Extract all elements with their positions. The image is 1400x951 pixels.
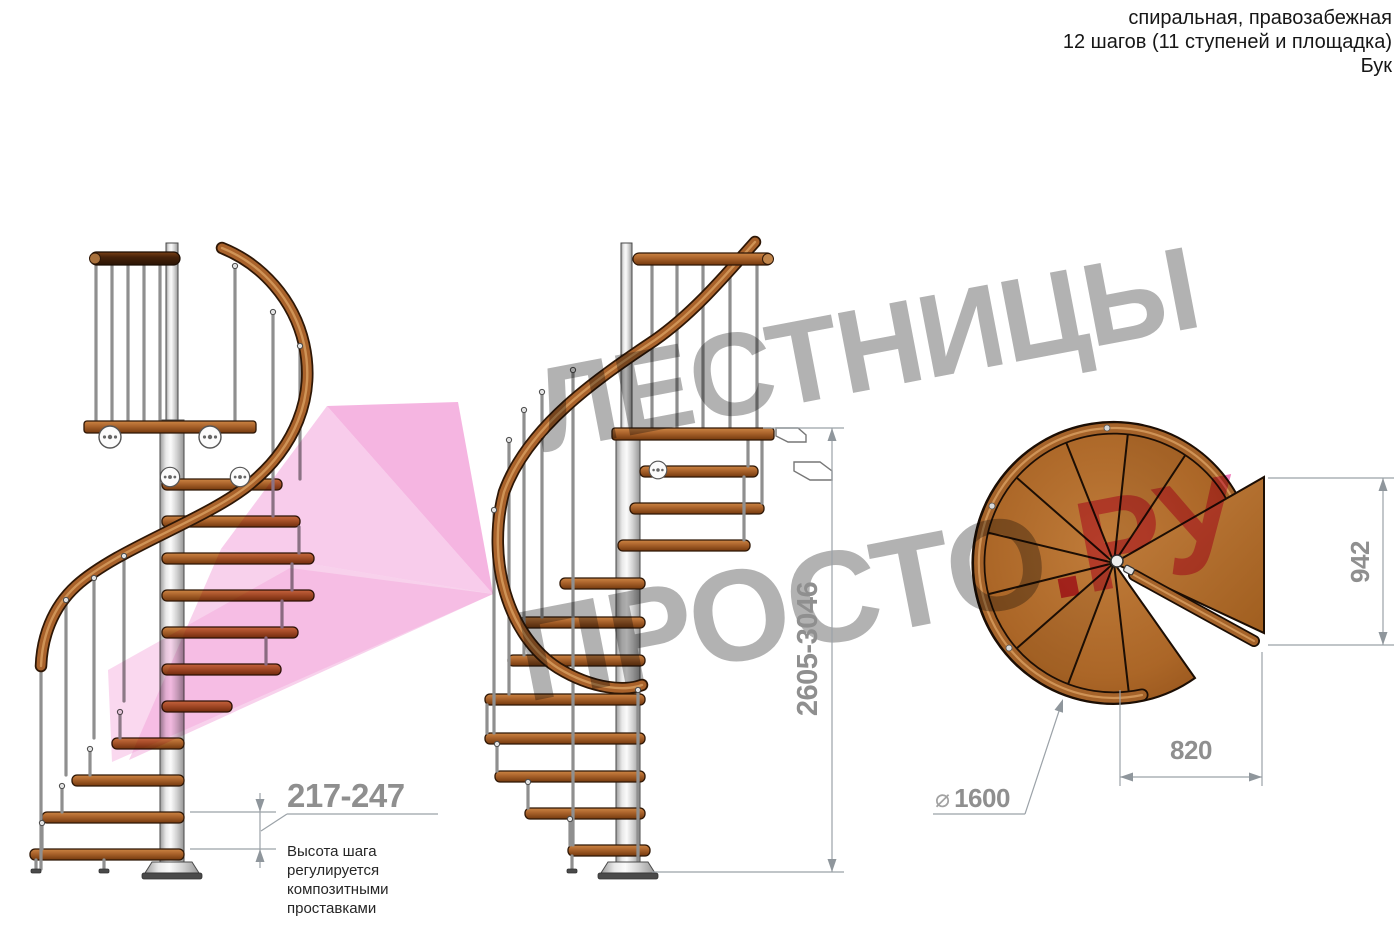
dim-landing-width-label: 820 <box>1170 735 1212 765</box>
platform-top-rail <box>633 253 773 265</box>
wall-brackets <box>776 428 832 480</box>
dim-total-height-label: 2605-3046 <box>792 582 824 717</box>
step-height-note-line: проставками <box>287 900 376 917</box>
dim-diameter: ⌀1600 <box>933 698 1067 814</box>
stair-step <box>72 775 184 786</box>
center-post-upper <box>166 243 178 423</box>
platform-railing <box>90 252 181 265</box>
platform-top-rail <box>90 252 180 265</box>
platform-railing <box>633 253 774 265</box>
spec-steps: 12 шагов (11 ступеней и площадка) <box>1063 31 1392 53</box>
rosette-disc <box>230 467 249 486</box>
stair-step <box>162 479 282 490</box>
dim-landing-height: 942 <box>1268 478 1394 645</box>
rosette-disc <box>199 426 221 448</box>
step-height-note-line: Высота шага <box>287 843 377 860</box>
dim-landing-height-label: 942 <box>1345 541 1375 583</box>
step-height-note-line: композитными <box>287 881 389 898</box>
dim-step-height: 217-247 Высота шага регулируется компози… <box>190 777 438 917</box>
drawing-page: ЛЕСТНИЦЫ ПРОСТО.РУ 2605-3046 217-247 Выс… <box>0 0 1400 951</box>
stair-step <box>30 849 184 860</box>
stair-step <box>525 808 645 819</box>
rosette-disc <box>160 467 179 486</box>
spiral-staircase-drawing: ЛЕСТНИЦЫ ПРОСТО.РУ 2605-3046 217-247 Выс… <box>0 0 1400 951</box>
rosette-disc <box>649 461 667 479</box>
column-base <box>142 862 202 879</box>
column-base <box>598 862 658 879</box>
rosette-disc <box>99 426 121 448</box>
stair-step <box>495 771 645 782</box>
stair-step <box>485 733 645 744</box>
spec-header: спиральная, правозабежная 12 шагов (11 с… <box>1063 7 1392 77</box>
dim-step-height-label: 217-247 <box>287 777 405 814</box>
stair-step <box>42 812 184 823</box>
spec-type: спиральная, правозабежная <box>1128 7 1392 29</box>
spec-material: Бук <box>1361 55 1393 77</box>
dim-diameter-label: ⌀1600 <box>935 783 1010 813</box>
step-height-note-line: регулируется <box>287 862 379 879</box>
